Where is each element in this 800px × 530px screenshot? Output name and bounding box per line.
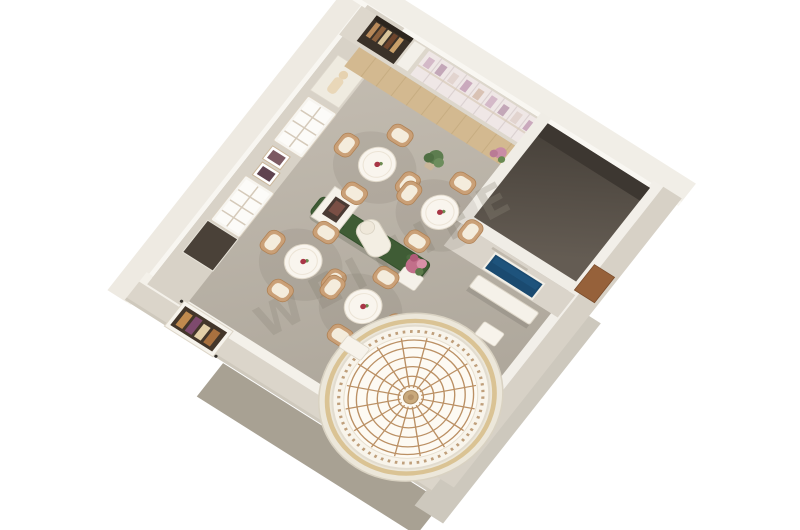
floor-plan-render: WEINIFE [0, 0, 800, 530]
